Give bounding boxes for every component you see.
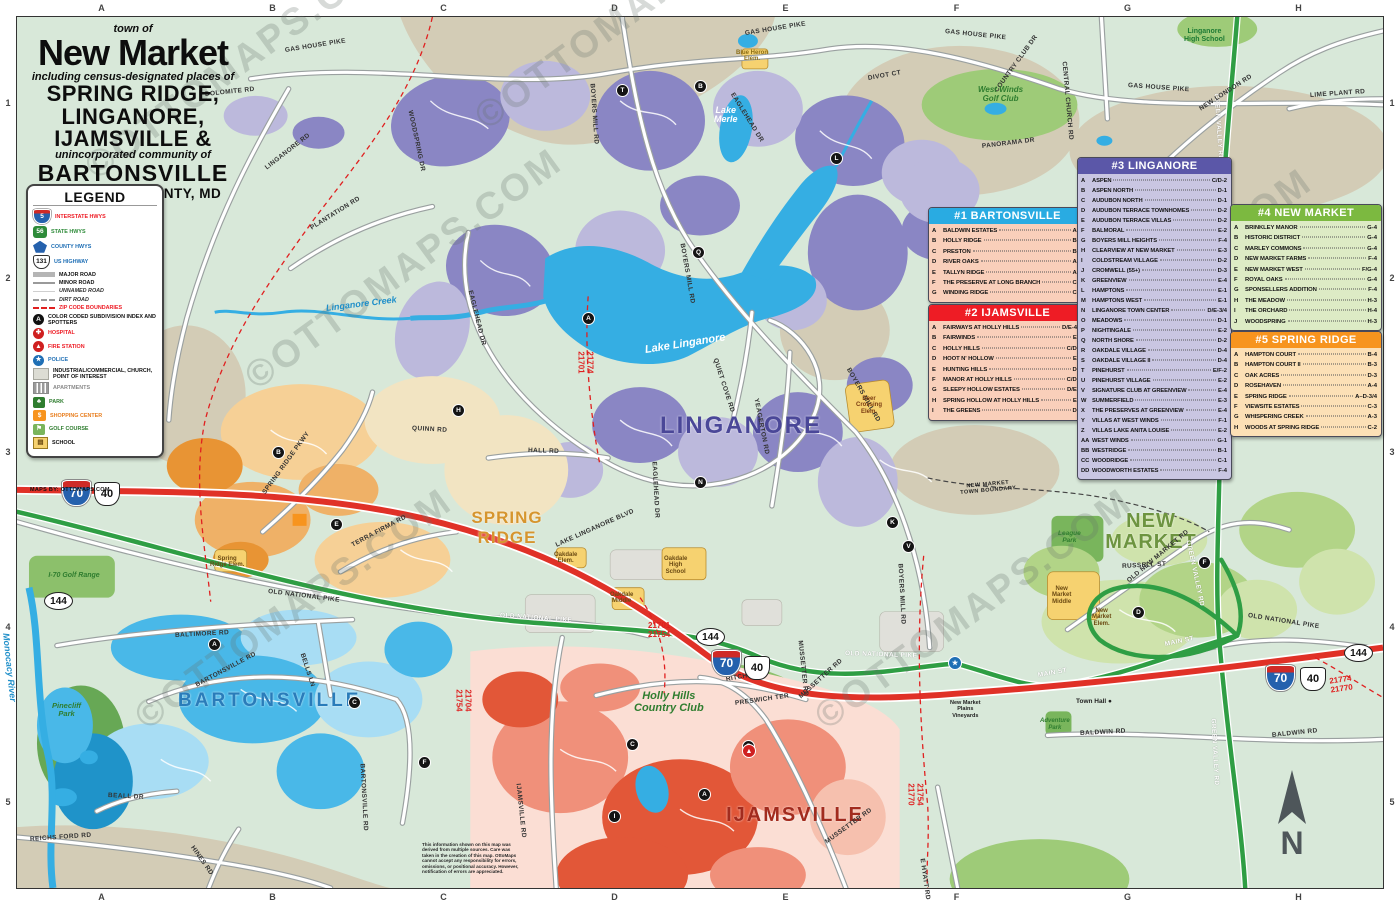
index-box-body: AFAIRWAYS AT HOLLY HILLSD/E-4/5BFAIRWIND… (929, 321, 1086, 420)
index-entry-name: OAKDALE VILLAGE (1092, 346, 1146, 356)
index-entry-name: WINDING RIDGE (943, 288, 988, 298)
index-entry-key: B (932, 236, 943, 246)
legend-items: 5 INTERSTATE HWYS 56 STATE HWYS COUNTY H… (33, 209, 157, 449)
index-entry-name: WESTRIDGE (1092, 446, 1126, 456)
index-entry-key: F (1234, 402, 1245, 412)
index-entry-grid: B-1 (1218, 446, 1227, 456)
legend-item: INDUSTRIAL/COMMERCIAL, CHURCH, POINT OF … (33, 368, 157, 380)
index-entry-name: WHISPERING CREEK (1245, 412, 1304, 422)
legend-item-icon (33, 282, 55, 284)
index-entry-grid: E-3 (1218, 246, 1227, 256)
index-entry-name: FAIRWINDS (943, 333, 975, 343)
index-entry-name: AUDUBON TERRACE TOWNHOMES (1092, 206, 1189, 216)
index-entry: SOAKDALE VILLAGE IID-4 (1081, 356, 1227, 366)
index-entry-key: Q (1081, 336, 1092, 346)
park-label: Pinecliff Park (52, 702, 81, 719)
index-entry-name: WOODSPRING (1245, 317, 1286, 327)
park-label: West Winds Golf Club (978, 86, 1023, 104)
legend-item-label: FIRE STATION (48, 344, 85, 350)
legend-item: ▤ SCHOOL (33, 437, 157, 449)
index-entry-grid: E/F-2 (1213, 366, 1227, 376)
index-entry-name: OAKDALE VILLAGE II (1092, 356, 1150, 366)
index-entry-key: L (1081, 286, 1092, 296)
compass-n-label: N (1280, 825, 1303, 861)
grid-number: 1 (0, 16, 16, 191)
index-entry-grid: H-3 (1368, 296, 1378, 306)
legend-item-label: MAJOR ROAD (59, 272, 96, 278)
index-entry: JWOODSPRINGH-3 (1234, 317, 1377, 327)
index-entry-name: BALMORAL (1092, 226, 1124, 236)
index-entry: AHAMPTON COURTB-4 (1234, 350, 1377, 360)
index-entry: GWHISPERING CREEKA-3 (1234, 412, 1377, 422)
index-box-header: #5 SPRING RIDGE (1231, 332, 1381, 348)
index-entry-key: H (1081, 246, 1092, 256)
dotted-leader (1302, 237, 1365, 238)
highway-number: 70 (720, 656, 733, 670)
highway-shield: 40 (1300, 667, 1326, 691)
index-entry-name: BOYERS MILL HEIGHTS (1092, 236, 1157, 246)
index-entry-grid: H-4 (1368, 306, 1378, 316)
legend-item-icon: $ (33, 410, 46, 421)
index-entry: CAUDUBON NORTHD-1 (1081, 196, 1227, 206)
index-entry: QNORTH SHORED-2 (1081, 336, 1227, 346)
school-label: Linganore High School (1184, 28, 1225, 43)
subdivision-spotter-icon: A (698, 788, 711, 801)
index-entry-grid: D-2 (1218, 336, 1227, 346)
dotted-leader (1135, 190, 1216, 191)
grid-letters-top: ABCDEFGH (16, 0, 1384, 16)
dotted-leader (1021, 327, 1060, 328)
dotted-leader (986, 271, 1070, 272)
subdivision-spotter-icon: N (694, 476, 707, 489)
index-entry-grid: D-1 (1218, 186, 1227, 196)
index-entry: NLINGANORE TOWN CENTERD/E-3/4 (1081, 306, 1227, 316)
grid-letter: H (1213, 889, 1384, 905)
index-entry-key: H (932, 396, 943, 406)
dotted-leader (1152, 360, 1215, 361)
index-entry: JCROMWELL (55+)D-3 (1081, 266, 1227, 276)
highway-number: 144 (1350, 648, 1367, 659)
index-entry: AASPENC/D-2 (1081, 176, 1227, 186)
index-entry-key: A (932, 323, 943, 333)
legend-item-label: COUNTY HWYS (51, 244, 91, 250)
index-entry: ITHE ORCHARDH-4 (1234, 306, 1377, 316)
legend-item-icon (33, 382, 49, 394)
legend-item-icon (33, 299, 55, 301)
index-entry: HTHE MEADOWH-3 (1234, 296, 1377, 306)
index-entry-key: M (1081, 296, 1092, 306)
legend-item: UNNAMED ROAD (33, 288, 157, 294)
index-entry: KGREENVIEWE-4 (1081, 276, 1227, 286)
dotted-leader (1281, 374, 1365, 375)
index-entry: ZVILLAS LAKE ANITA LOUISEE-2 (1081, 426, 1227, 436)
index-entry: EAUDUBON TERRACE VILLASD-2 (1081, 216, 1227, 226)
index-entry-key: A (1234, 223, 1245, 233)
index-box-ijamsville: #2 IJAMSVILLE AFAIRWAYS AT HOLLY HILLSD/… (928, 304, 1087, 421)
index-entry-grid: D-3 (1368, 371, 1378, 381)
dotted-leader (1144, 300, 1216, 301)
school-label: Deer Crossing Elem. (856, 396, 882, 415)
index-entry-name: THE ORCHARD (1245, 306, 1287, 316)
zip-line-1: 21774 (585, 351, 594, 373)
grid-letter: F (871, 889, 1042, 905)
legend-item: ⚑ GOLF COURSE (33, 424, 157, 435)
region-label: LINGANORE (660, 412, 795, 440)
index-entry-name: WOODRIDGE (1092, 456, 1128, 466)
dotted-leader (1014, 379, 1065, 380)
index-entry-name: THE MEADOW (1245, 296, 1285, 306)
title-place-2: LINGANORE, (24, 106, 242, 128)
legend-item-label: DIRT ROAD (59, 297, 89, 303)
zip-line-2: 21754 (455, 689, 464, 711)
legend-item-icon: ♣ (33, 397, 45, 408)
index-box-header: #4 NEW MARKET (1231, 205, 1381, 221)
index-entry-grid: C-3 (1368, 402, 1378, 412)
legend-item-icon: ⚑ (33, 424, 45, 435)
index-entry: OMEADOWSD-1 (1081, 316, 1227, 326)
index-entry-key: B (1081, 186, 1092, 196)
dotted-leader (1298, 354, 1366, 355)
index-entry-grid: D-4 (1218, 346, 1227, 356)
legend-icon-glyph: ✚ (36, 330, 41, 336)
index-entry-name: WOODS AT SPRING RIDGE (1245, 423, 1319, 433)
legend-item-icon: ▲ (33, 341, 44, 352)
legend-item-icon: ★ (33, 355, 44, 366)
grid-number: 2 (1384, 191, 1400, 366)
index-entry: GSPONSELLERS ADDITIONF-4 (1234, 285, 1377, 295)
region-label: SPRING RIDGE (452, 508, 562, 547)
index-entry-name: NEW MARKET FARMS (1245, 254, 1306, 264)
index-entry-key: G (1234, 412, 1245, 422)
highway-shield: 40 (94, 482, 120, 506)
grid-letter: C (358, 889, 529, 905)
map-credit: MAPS BY: OTTOMAPS.COM (30, 487, 110, 493)
grid-letters-bottom: ABCDEFGH (16, 889, 1384, 905)
grid-letter: C (358, 0, 529, 16)
index-entry-key: C (1234, 371, 1245, 381)
index-entry-key: Z (1081, 426, 1092, 436)
legend-item: ZIP CODE BOUNDARIES (33, 305, 157, 311)
index-entry-key: B (1234, 233, 1245, 243)
legend-item-icon (33, 241, 47, 253)
index-entry-name: COLDSTREAM VILLAGE (1092, 256, 1158, 266)
index-entry-name: MARLEY COMMONS (1245, 244, 1301, 254)
index-entry-grid: E-1 (1218, 286, 1227, 296)
index-entry-name: SUMMERFIELD (1092, 396, 1133, 406)
index-entry-name: NEW MARKET WEST (1245, 265, 1303, 275)
school-label: Blue Heron Elem. (736, 50, 768, 63)
index-box-header: #1 BARTONSVILLE (929, 208, 1086, 224)
index-entry: HSPRING HOLLOW AT HOLLY HILLSE-5 (932, 396, 1082, 406)
index-entry: UPINEHURST VILLAGEE-2 (1081, 376, 1227, 386)
index-entry-grid: D-4 (1218, 356, 1227, 366)
dotted-leader (1160, 470, 1216, 471)
dotted-leader (1128, 450, 1215, 451)
dotted-leader (1153, 380, 1216, 381)
index-entry-name: HUNTING HILLS (943, 365, 987, 375)
index-entry-key: J (1081, 266, 1092, 276)
index-entry-grid: E-2 (1218, 226, 1227, 236)
dotted-leader (984, 240, 1071, 241)
subdivision-spotter-icon: C (348, 696, 361, 709)
zip-code-label: 2175421770 (907, 783, 924, 805)
legend-item-icon (33, 291, 55, 293)
subdivision-spotter-icon: I (608, 810, 621, 823)
index-box-body: ABALDWIN ESTATESA-4BHOLLY RIDGEB-4CPREST… (929, 224, 1086, 302)
dotted-leader (1306, 416, 1366, 417)
index-entry-grid: F/G-4 (1362, 265, 1377, 275)
index-box-body: ABRINKLEY MANORG-4BHISTORIC DISTRICTG-4C… (1231, 221, 1381, 330)
legend-item: A COLOR CODED SUBDIVISION INDEX AND SPOT… (33, 314, 157, 326)
index-entry-grid: E-3 (1218, 396, 1227, 406)
park-label: Holly Hills Country Club (634, 690, 704, 714)
index-entry-name: MEADOWS (1092, 316, 1122, 326)
index-box-spring-ridge: #5 SPRING RIDGE AHAMPTON COURTB-4BHAMPTO… (1230, 331, 1382, 437)
index-entry-key: F (932, 278, 943, 288)
index-entry-key: E (1234, 265, 1245, 275)
index-entry-grid: A-3 (1368, 412, 1378, 422)
legend: LEGEND 5 INTERSTATE HWYS 56 STATE HWYS C… (26, 184, 164, 458)
index-box-bartonsville: #1 BARTONSVILLE ABALDWIN ESTATESA-4BHOLL… (928, 207, 1087, 303)
index-entry-grid: G-4 (1367, 233, 1377, 243)
legend-item-label: HOSPITAL (48, 330, 75, 336)
legend-item: ▲ FIRE STATION (33, 341, 157, 352)
highway-number: 70 (1274, 671, 1287, 685)
index-entry-key: O (1081, 316, 1092, 326)
index-entry: DAUDUBON TERRACE TOWNHOMESD-2 (1081, 206, 1227, 216)
dotted-leader (1113, 180, 1209, 181)
index-entry-grid: D-1 (1218, 316, 1227, 326)
index-entry: CMARLEY COMMONSG-4 (1234, 244, 1377, 254)
index-entry-name: AUDUBON NORTH (1092, 196, 1143, 206)
index-entry-name: GREENVIEW (1092, 276, 1127, 286)
legend-icon-glyph: ▤ (37, 440, 43, 446)
index-entry: BASPEN NORTHD-1 (1081, 186, 1227, 196)
index-entry-key: B (1234, 360, 1245, 370)
zip-line-2: 21701 (577, 351, 586, 373)
index-entry-grid: F-4 (1368, 285, 1377, 295)
highway-shield: 40 (744, 656, 770, 680)
index-entry-key: DD (1081, 466, 1092, 476)
highway-shield: 144 (696, 628, 725, 646)
index-entry-name: THE PRESERVES AT GREENVIEW (1092, 406, 1184, 416)
index-entry: ROAKDALE VILLAGED-4 (1081, 346, 1227, 356)
index-entry-name: AUDUBON TERRACE VILLAS (1092, 216, 1171, 226)
index-entry-key: G (932, 385, 943, 395)
index-box-new-market: #4 NEW MARKET ABRINKLEY MANORG-4BHISTORI… (1230, 204, 1382, 331)
dotted-leader (1131, 440, 1216, 441)
index-entry-key: E (932, 268, 943, 278)
dotted-leader (1136, 340, 1216, 341)
legend-item-label: PARK (49, 399, 64, 405)
index-box-linganore: #3 LINGANORE AASPENC/D-2BASPEN NORTHD-1C… (1077, 157, 1232, 480)
dotted-leader (1124, 320, 1215, 321)
legend-item-label: STATE HWYS (51, 229, 86, 235)
index-entry-key: BB (1081, 446, 1092, 456)
grid-numbers-right: 12345 (1384, 16, 1400, 889)
index-entry-name: CROMWELL (55+) (1092, 266, 1140, 276)
dotted-leader (1303, 364, 1366, 365)
index-entry: GWINDING RIDGEC-4 (932, 288, 1082, 298)
index-entry-key: T (1081, 366, 1092, 376)
index-entry-name: HAMPTONS (1092, 286, 1124, 296)
index-entry: MHAMPTONS WESTE-1 (1081, 296, 1227, 306)
index-entry-name: ROSEHAVEN (1245, 381, 1281, 391)
index-entry-key: A (1234, 350, 1245, 360)
index-entry-key: I (1081, 256, 1092, 266)
dotted-leader (1135, 400, 1216, 401)
index-entry-key: D (932, 257, 943, 267)
dotted-leader (981, 261, 1071, 262)
index-entry: GSLEEPY HOLLOW ESTATESD/E-5 (932, 385, 1082, 395)
highway-number: 40 (1307, 673, 1319, 685)
grid-letter: D (529, 889, 700, 905)
grid-letter: B (187, 0, 358, 16)
index-entry-name: CLEARVIEW AT NEW MARKET (1092, 246, 1175, 256)
highway-number: 144 (50, 596, 67, 607)
index-entry-grid: D-2 (1218, 206, 1227, 216)
school-label: Oakdale Elem. (554, 552, 577, 565)
index-entry: BBWESTRIDGEB-1 (1081, 446, 1227, 456)
school-label: Spring Ridge Elem. (210, 556, 244, 569)
index-entry-name: WEST WINDS (1092, 436, 1129, 446)
legend-icon-glyph: 5 (40, 214, 44, 220)
legend-item-label: INDUSTRIAL/COMMERCIAL, CHURCH, POINT OF … (53, 368, 157, 380)
legend-item: APARTMENTS (33, 382, 157, 394)
index-entry: PNIGHTINGALEE-2 (1081, 326, 1227, 336)
legend-item-icon: 5 (33, 209, 51, 224)
index-entry-grid: E-4 (1218, 406, 1227, 416)
index-entry: ABALDWIN ESTATESA-4 (932, 226, 1082, 236)
index-entry-grid: B-3 (1368, 360, 1378, 370)
legend-item-label: APARTMENTS (53, 385, 90, 391)
index-entry-key: I (1234, 306, 1245, 316)
index-entry-grid: A–D-3/4 (1355, 392, 1377, 402)
index-entry-name: HISTORIC DISTRICT (1245, 233, 1300, 243)
subdivision-spotter-icon: F (418, 756, 431, 769)
index-entry-grid: C-2 (1368, 423, 1378, 433)
legend-item-label: UNNAMED ROAD (59, 288, 104, 294)
dotted-leader (1289, 310, 1365, 311)
grid-letter: B (187, 889, 358, 905)
index-entry-name: HAMPTON COURT II (1245, 360, 1301, 370)
poi-label: New Market Plains Vineyards (950, 700, 981, 719)
index-entry-key: E (1081, 216, 1092, 226)
index-entry-grid: E-4 (1218, 276, 1227, 286)
index-entry: VSIGNATURE CLUB AT GREENVIEWE-4 (1081, 386, 1227, 396)
index-entry-grid: B-4 (1368, 350, 1378, 360)
index-entry: BHAMPTON COURT IIB-3 (1234, 360, 1377, 370)
map-disclaimer: This information shown on this map was d… (422, 842, 519, 874)
subdivision-spotter-icon: H (452, 404, 465, 417)
dotted-leader (1177, 250, 1216, 251)
grid-number: 5 (0, 714, 16, 889)
legend-item-icon: ✚ (33, 328, 44, 339)
index-entry-grid: C-1 (1218, 456, 1227, 466)
index-entry-key: G (932, 288, 943, 298)
legend-item: COUNTY HWYS (33, 241, 157, 253)
dotted-leader (1126, 230, 1216, 231)
road-label: HALL RD (528, 447, 559, 455)
legend-item: DIRT ROAD (33, 297, 157, 303)
index-entry-name: WOODWORTH ESTATES (1092, 466, 1158, 476)
grid-number: 3 (0, 365, 16, 540)
grid-numbers-left: 12345 (0, 16, 16, 889)
grid-number: 5 (1384, 714, 1400, 889)
dotted-leader (977, 337, 1071, 338)
index-entry-name: THE GREENS (943, 406, 980, 416)
dotted-leader (1159, 240, 1216, 241)
index-entry-key: CC (1081, 456, 1092, 466)
dotted-leader (999, 230, 1070, 231)
index-entry-key: F (932, 375, 943, 385)
legend-item-icon (33, 368, 49, 380)
index-entry-name: LINGANORE TOWN CENTER (1092, 306, 1169, 316)
zip-code-label: 2177421701 (577, 351, 594, 373)
index-entry-grid: E-2 (1218, 426, 1227, 436)
index-entry-name: SPRING HOLLOW AT HOLLY HILLS (943, 396, 1039, 406)
dotted-leader (982, 347, 1065, 348)
legend-item-icon: 131 (33, 255, 50, 269)
index-entry: ABRINKLEY MANORG-4 (1234, 223, 1377, 233)
dotted-leader (1319, 289, 1366, 290)
school-label: Oakdale High School (664, 556, 687, 575)
dotted-leader (1148, 350, 1216, 351)
dotted-leader (1041, 399, 1071, 400)
index-entry: BHOLLY RIDGEB-4 (932, 236, 1082, 246)
index-entry-key: D (1081, 206, 1092, 216)
index-entry-key: G (1081, 236, 1092, 246)
index-entry-grid: E-2 (1218, 376, 1227, 386)
map-page: ABCDEFGH ABCDEFGH 12345 12345 (0, 0, 1400, 905)
dotted-leader (1022, 389, 1065, 390)
zip-line-1: 21754 (915, 783, 924, 805)
index-entry-grid: D-2 (1218, 216, 1227, 226)
legend-item-label: GOLF COURSE (49, 426, 89, 432)
index-entry-key: F (1234, 275, 1245, 285)
legend-icon-glyph: ★ (36, 357, 42, 363)
legend-item: $ SHOPPING CENTER (33, 410, 157, 421)
region-label: BARTONSVILLE (178, 690, 358, 712)
legend-icon-glyph: ♣ (37, 399, 41, 405)
index-entry-key: A (1081, 176, 1092, 186)
legend-item-icon: A (33, 314, 44, 325)
index-entry-name: SIGNATURE CLUB AT GREENVIEW (1092, 386, 1186, 396)
subdivision-spotter-icon: Q (692, 246, 705, 259)
legend-item: ✚ HOSPITAL (33, 328, 157, 339)
dotted-leader (1186, 410, 1216, 411)
dotted-leader (990, 292, 1070, 293)
dotted-leader (1171, 430, 1216, 431)
index-entry-grid: E-1 (1218, 296, 1227, 306)
legend-item-label: US HIGHWAY (54, 259, 88, 265)
legend-item-label: ZIP CODE BOUNDARIES (59, 305, 122, 311)
index-entry: FROYAL OAKSG-4 (1234, 275, 1377, 285)
dotted-leader (1145, 200, 1216, 201)
index-entry: CPRESTONB-4 (932, 247, 1082, 257)
legend-item: 56 STATE HWYS (33, 226, 157, 238)
dotted-leader (1173, 220, 1215, 221)
index-entry: ETALLYN RIDGEA-5 (932, 268, 1082, 278)
index-entry-key: K (1081, 276, 1092, 286)
index-entry: DNEW MARKET FARMSF-4 (1234, 254, 1377, 264)
index-entry-key: A (932, 226, 943, 236)
index-entry-name: PINEHURST VILLAGE (1092, 376, 1151, 386)
grid-letter: G (1042, 0, 1213, 16)
zip-code-label: 2170421754 (455, 689, 472, 711)
legend-title: LEGEND (33, 189, 157, 206)
subdivision-spotter-icon: A (582, 312, 595, 325)
